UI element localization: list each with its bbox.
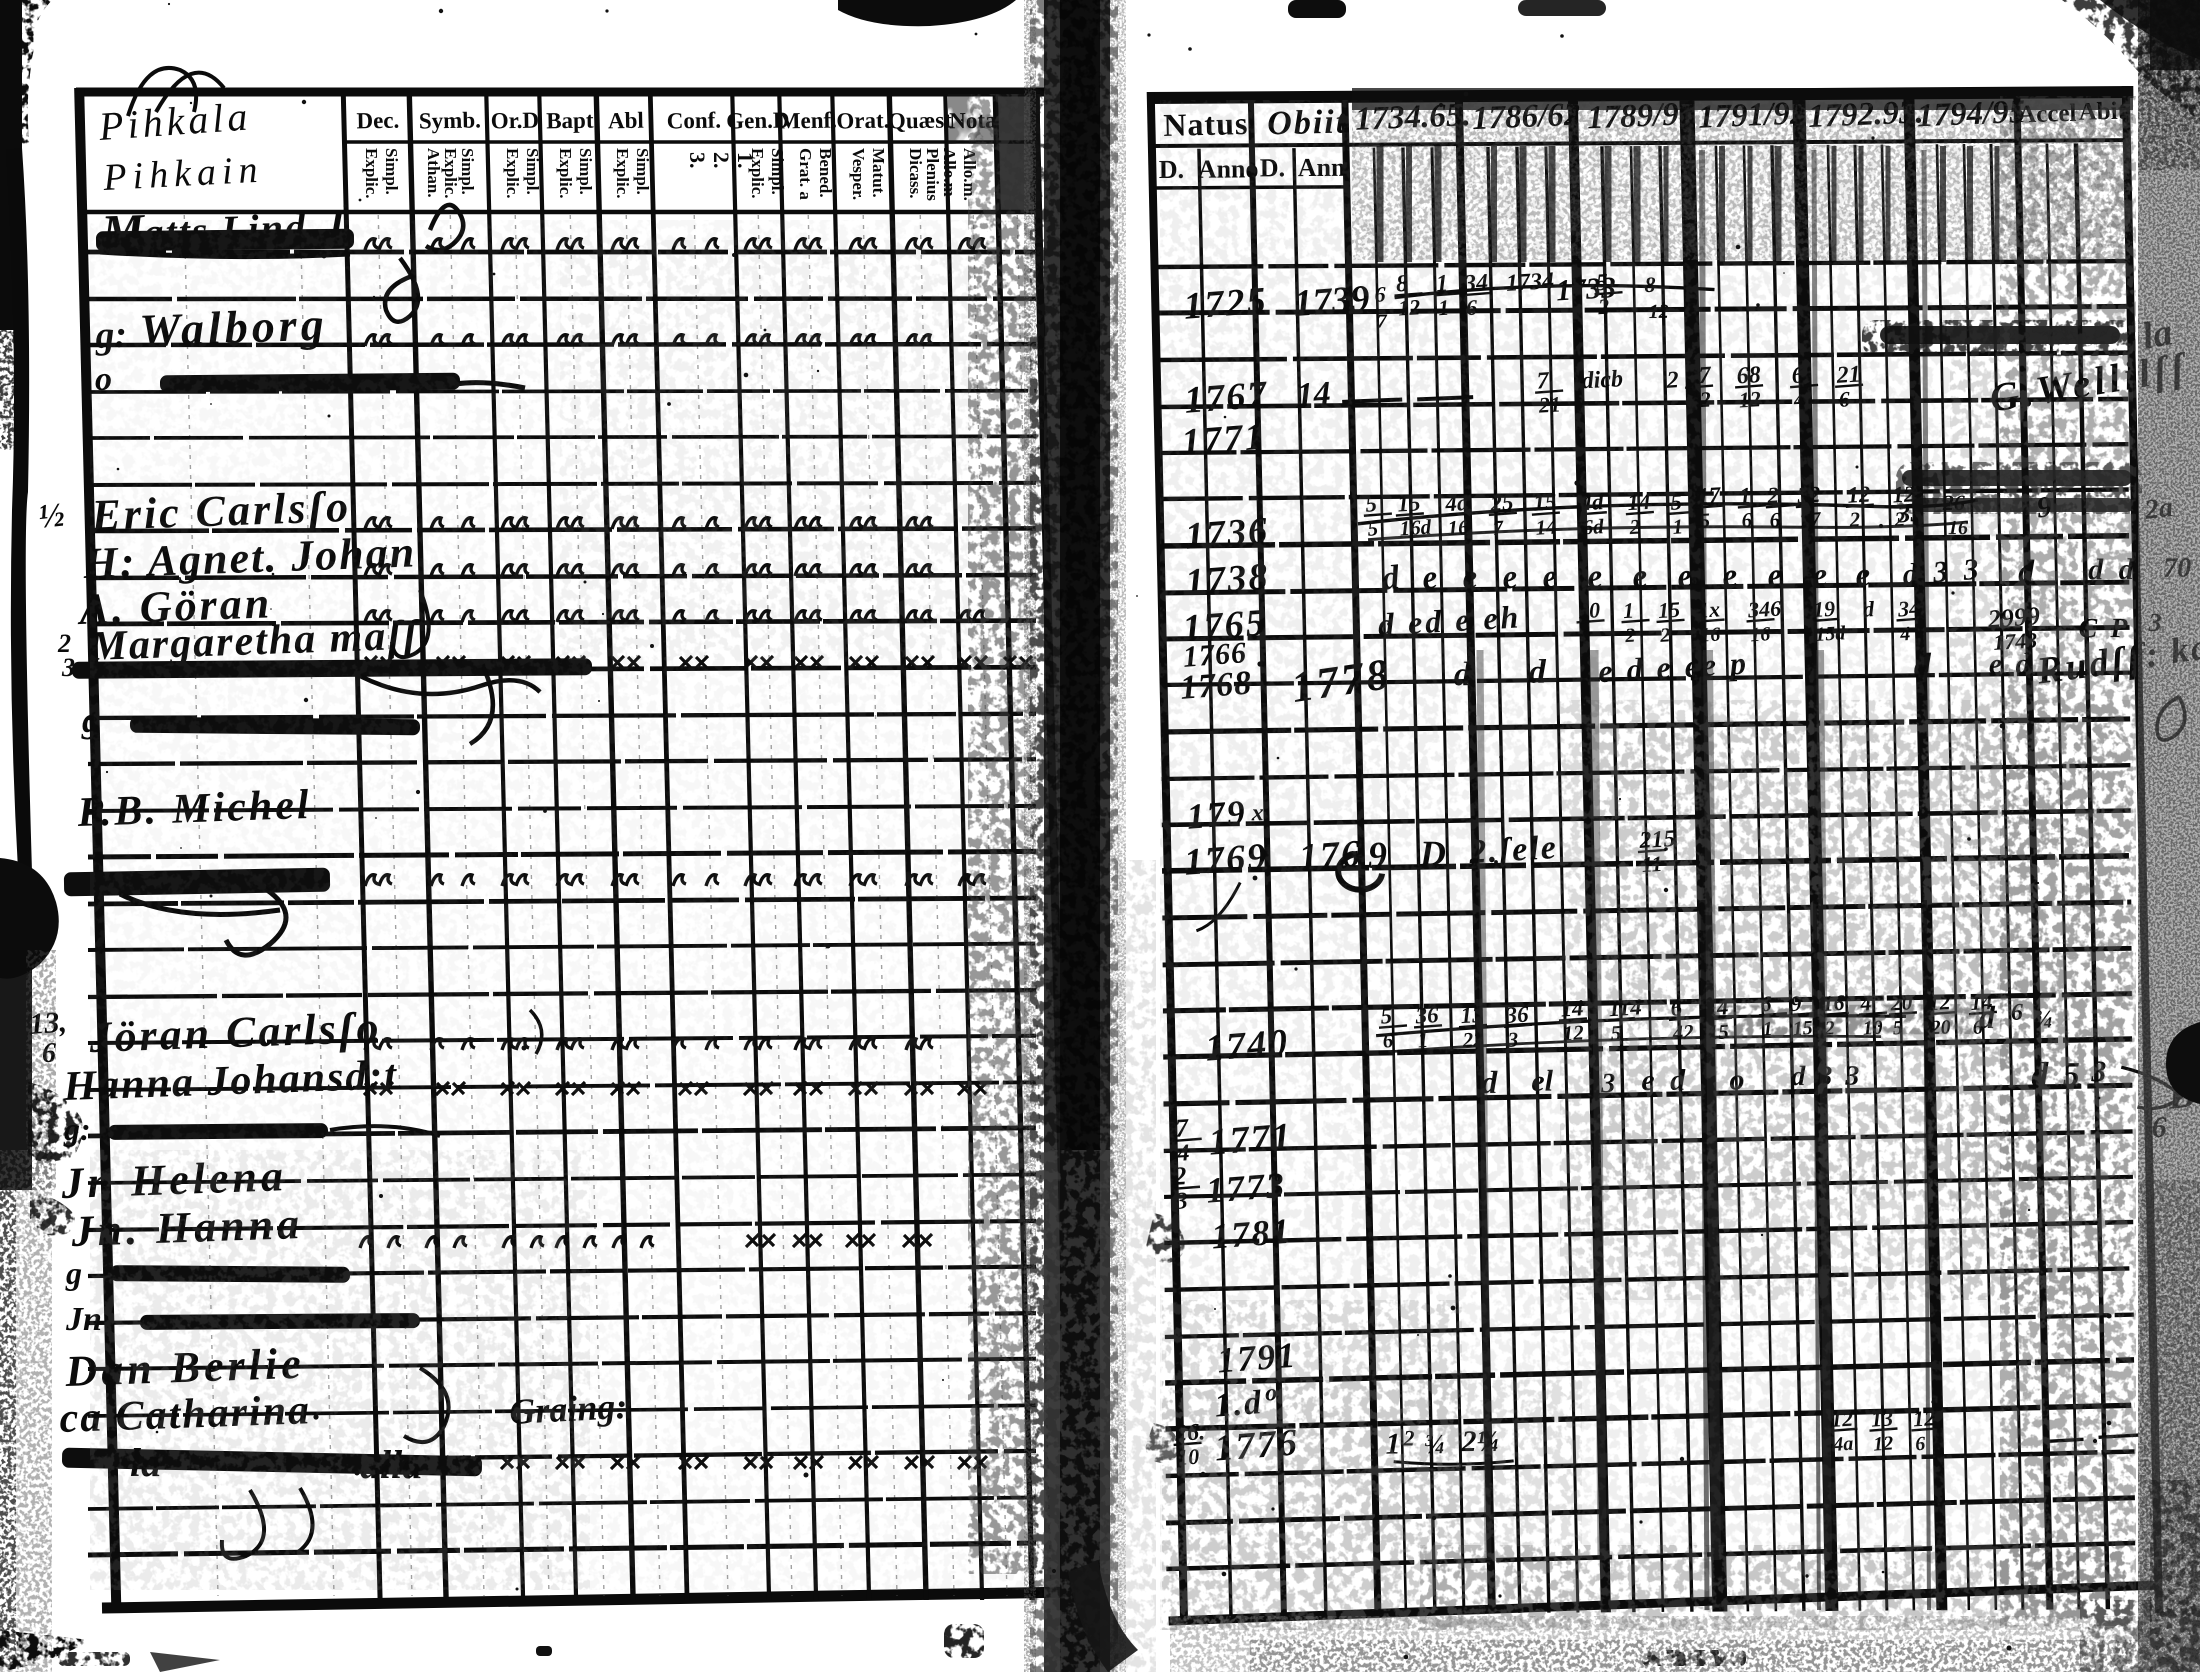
svg-text:Explic.: Explic. xyxy=(441,148,460,199)
svg-text:3.: 3. xyxy=(685,152,710,169)
svg-text:Conf.: Conf. xyxy=(666,108,721,134)
svg-text:Abl: Abl xyxy=(608,108,644,134)
svg-text:Pihkain: Pihkain xyxy=(101,149,264,199)
svg-text:Simpl.: Simpl. xyxy=(768,148,787,195)
svg-text:½: ½ xyxy=(37,496,66,535)
svg-text:Symb.: Symb. xyxy=(419,107,481,133)
svg-text:2.: 2. xyxy=(709,152,734,169)
svg-text:Bened.: Bened. xyxy=(816,148,835,198)
svg-text:g: g xyxy=(65,1255,82,1291)
svg-text:Vesper.: Vesper. xyxy=(849,148,868,200)
svg-text:Explic.: Explic. xyxy=(362,148,381,199)
svg-text:Plenius: Plenius xyxy=(923,148,942,201)
svg-text:Athan.: Athan. xyxy=(424,148,443,198)
svg-text:Simpl.: Simpl. xyxy=(458,148,477,195)
svg-text:Quæst: Quæst xyxy=(888,107,953,133)
svg-text:Allo.m: Allo.m xyxy=(940,148,959,197)
svg-text:Or.D: Or.D xyxy=(490,108,539,134)
svg-text:Explic.: Explic. xyxy=(503,148,522,199)
svg-text:Dicass.: Dicass. xyxy=(906,148,925,199)
svg-text:Simpl.: Simpl. xyxy=(523,148,542,195)
svg-text:Matut.: Matut. xyxy=(869,148,888,198)
svg-text:Orat.: Orat. xyxy=(836,108,889,134)
svg-text:Explic.: Explic. xyxy=(748,148,767,199)
svg-text:Simpl.: Simpl. xyxy=(576,148,595,195)
svg-text:Bapt: Bapt xyxy=(546,108,594,134)
svg-text:Grat. a: Grat. a xyxy=(796,148,815,200)
svg-text:Simpl.: Simpl. xyxy=(382,148,401,195)
svg-text:Explic.: Explic. xyxy=(556,148,575,199)
svg-text:Dec.: Dec. xyxy=(356,108,399,134)
svg-text:Menf.: Menf. xyxy=(779,107,838,133)
svg-text:Explic.: Explic. xyxy=(613,148,632,199)
svg-text:Simpl.: Simpl. xyxy=(633,148,652,195)
